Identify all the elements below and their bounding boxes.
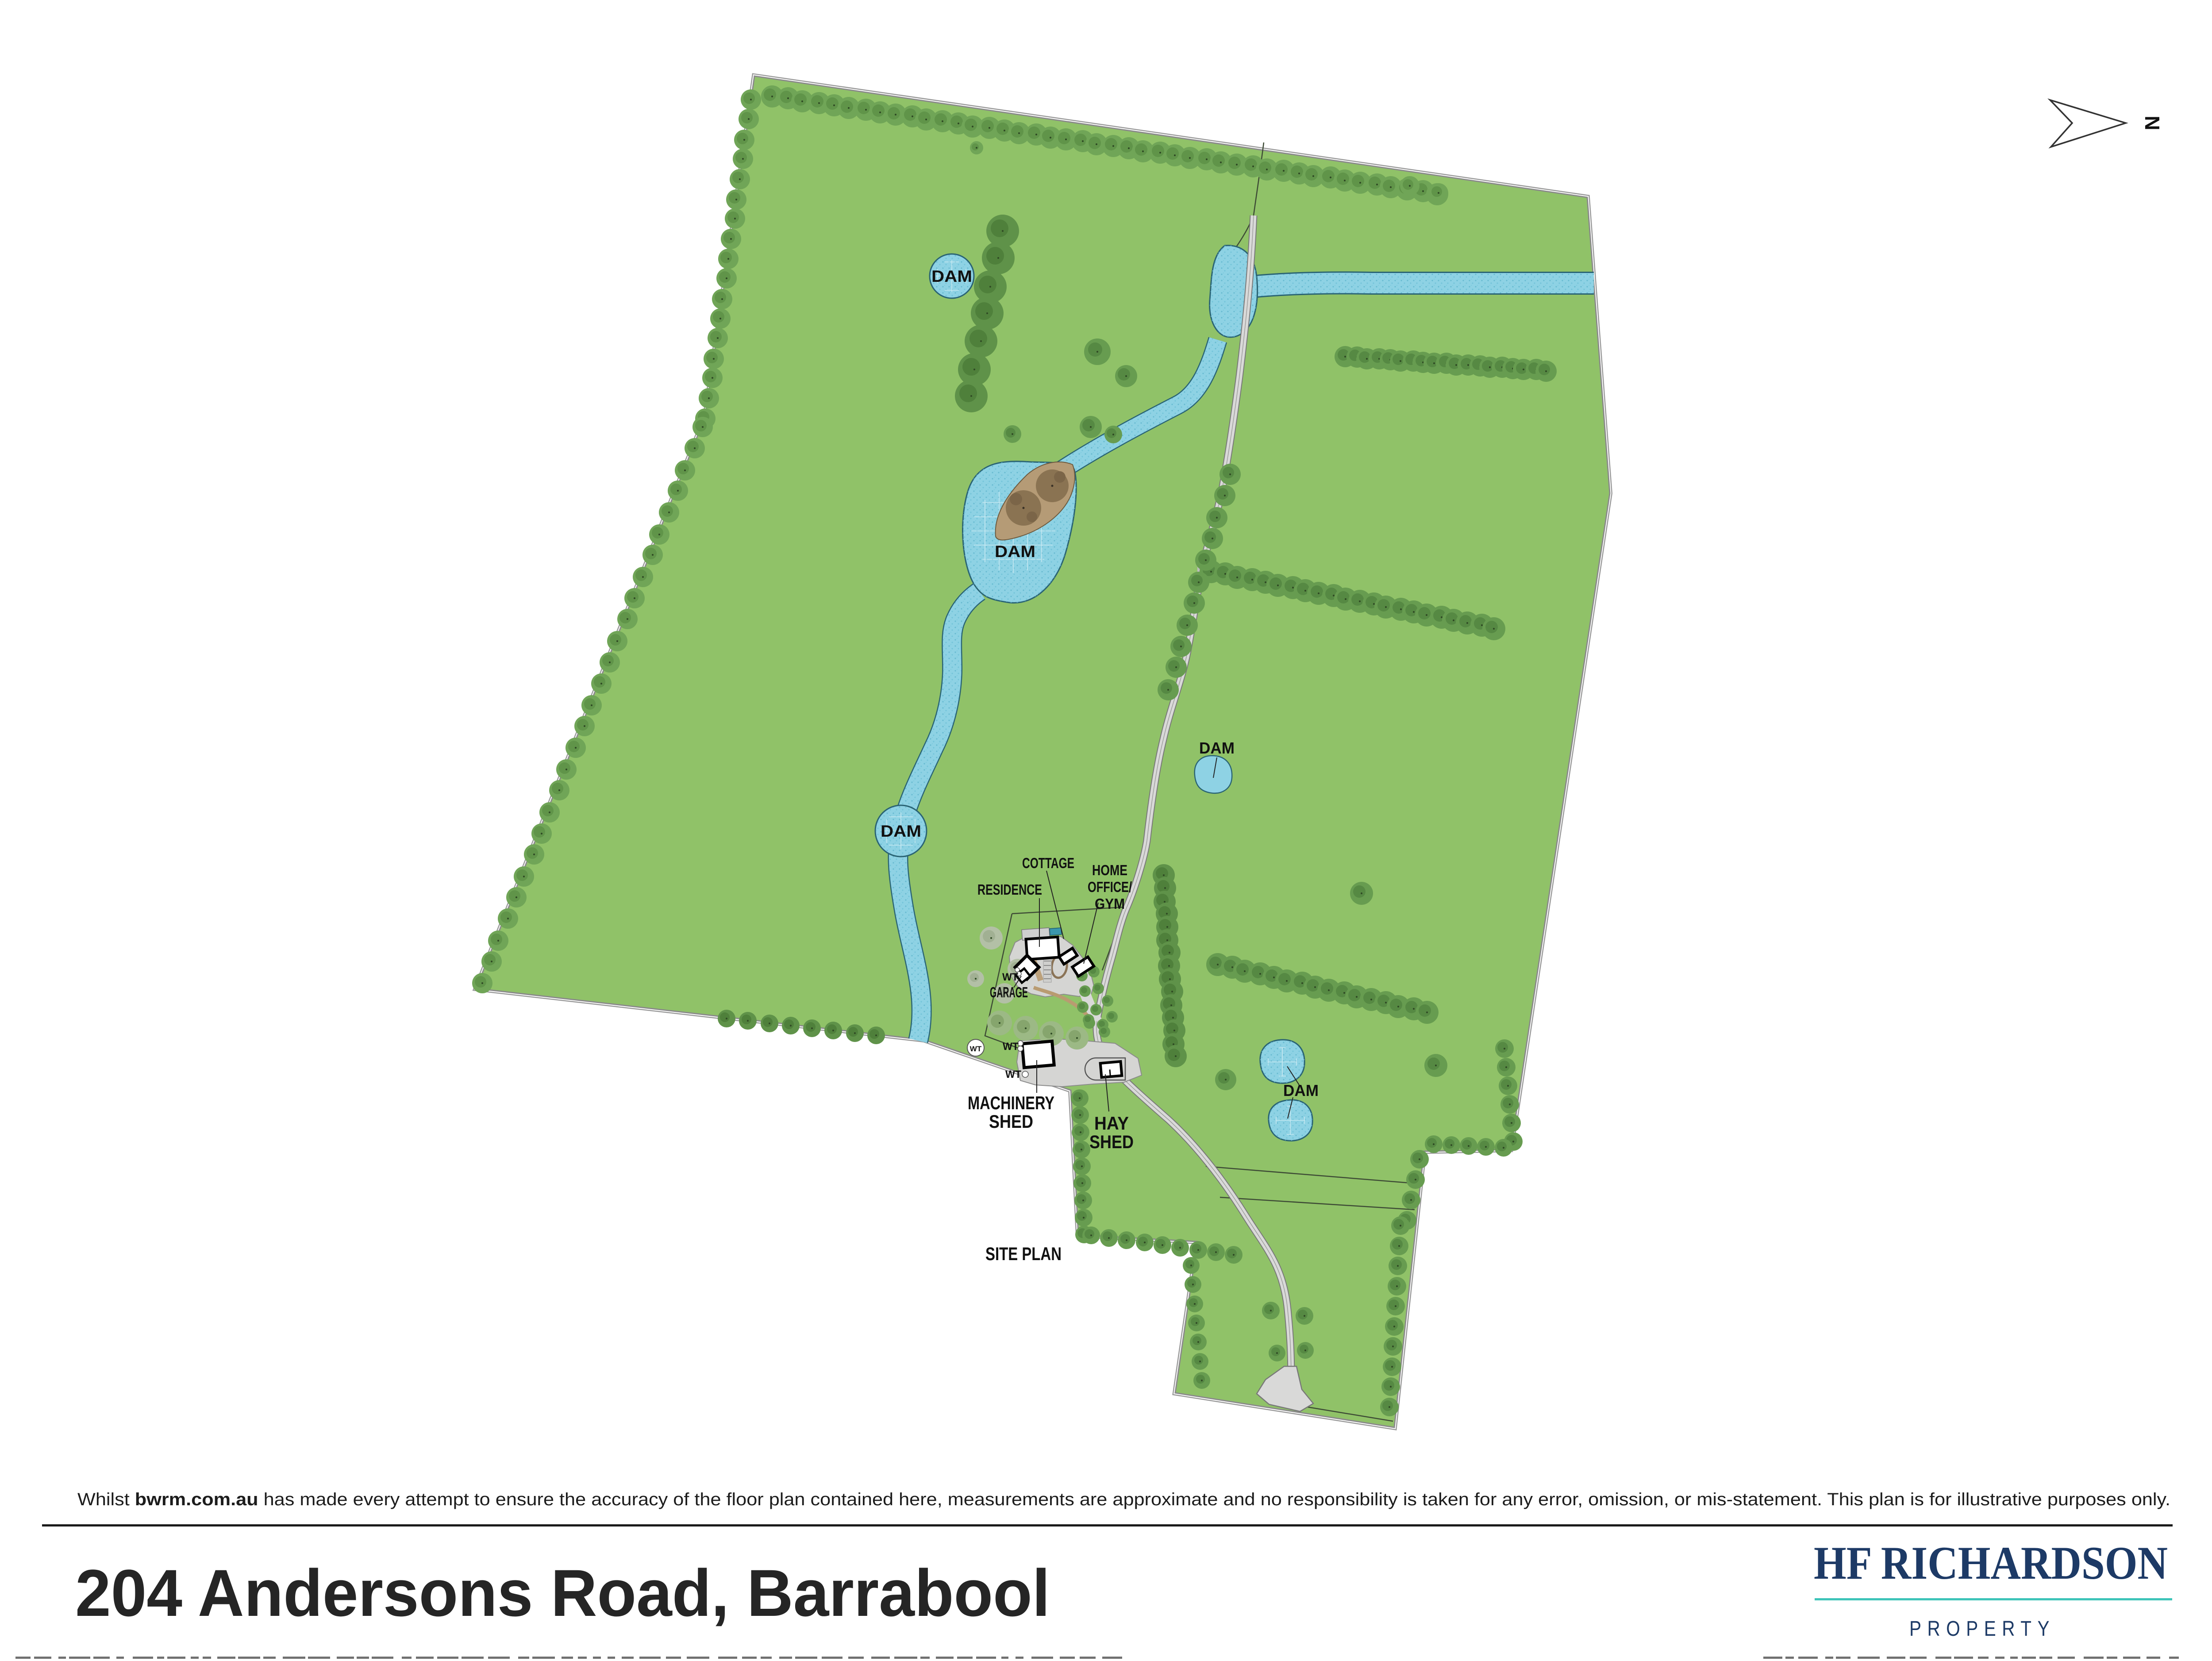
svg-text:Whilst bwrm.com.au has made ev: Whilst bwrm.com.au has made every attemp…: [77, 1490, 2170, 1509]
svg-text:COTTAGE: COTTAGE: [1022, 855, 1074, 871]
svg-text:OFFICE/: OFFICE/: [1088, 879, 1132, 895]
svg-text:N: N: [2141, 115, 2164, 130]
svg-text:204 Andersons Road, Barrabool: 204 Andersons Road, Barrabool: [75, 1556, 1050, 1630]
svg-text:HOME: HOME: [1092, 862, 1127, 878]
svg-text:RESIDENCE: RESIDENCE: [977, 881, 1042, 898]
svg-text:PROPERTY: PROPERTY: [1909, 1617, 2055, 1641]
svg-text:DAM: DAM: [1283, 1081, 1319, 1100]
svg-text:DAM: DAM: [995, 542, 1035, 561]
svg-text:SHED: SHED: [989, 1111, 1033, 1132]
svg-text:WT: WT: [1003, 1041, 1019, 1053]
svg-text:HAY: HAY: [1094, 1113, 1129, 1134]
svg-text:SHED: SHED: [1089, 1131, 1134, 1152]
svg-text:GARAGE: GARAGE: [990, 984, 1028, 1000]
svg-text:GYM: GYM: [1095, 896, 1125, 912]
svg-text:MACHINERY: MACHINERY: [968, 1092, 1054, 1113]
svg-text:DAM: DAM: [881, 822, 921, 840]
svg-text:HF RICHARDSON: HF RICHARDSON: [1814, 1537, 2168, 1589]
svg-text:WT: WT: [970, 1045, 982, 1053]
svg-text:WT: WT: [1002, 971, 1018, 983]
svg-text:DAM: DAM: [931, 267, 972, 285]
svg-text:SITE PLAN: SITE PLAN: [985, 1243, 1062, 1264]
svg-text:DAM: DAM: [1199, 739, 1235, 757]
svg-text:WT: WT: [1005, 1069, 1021, 1080]
